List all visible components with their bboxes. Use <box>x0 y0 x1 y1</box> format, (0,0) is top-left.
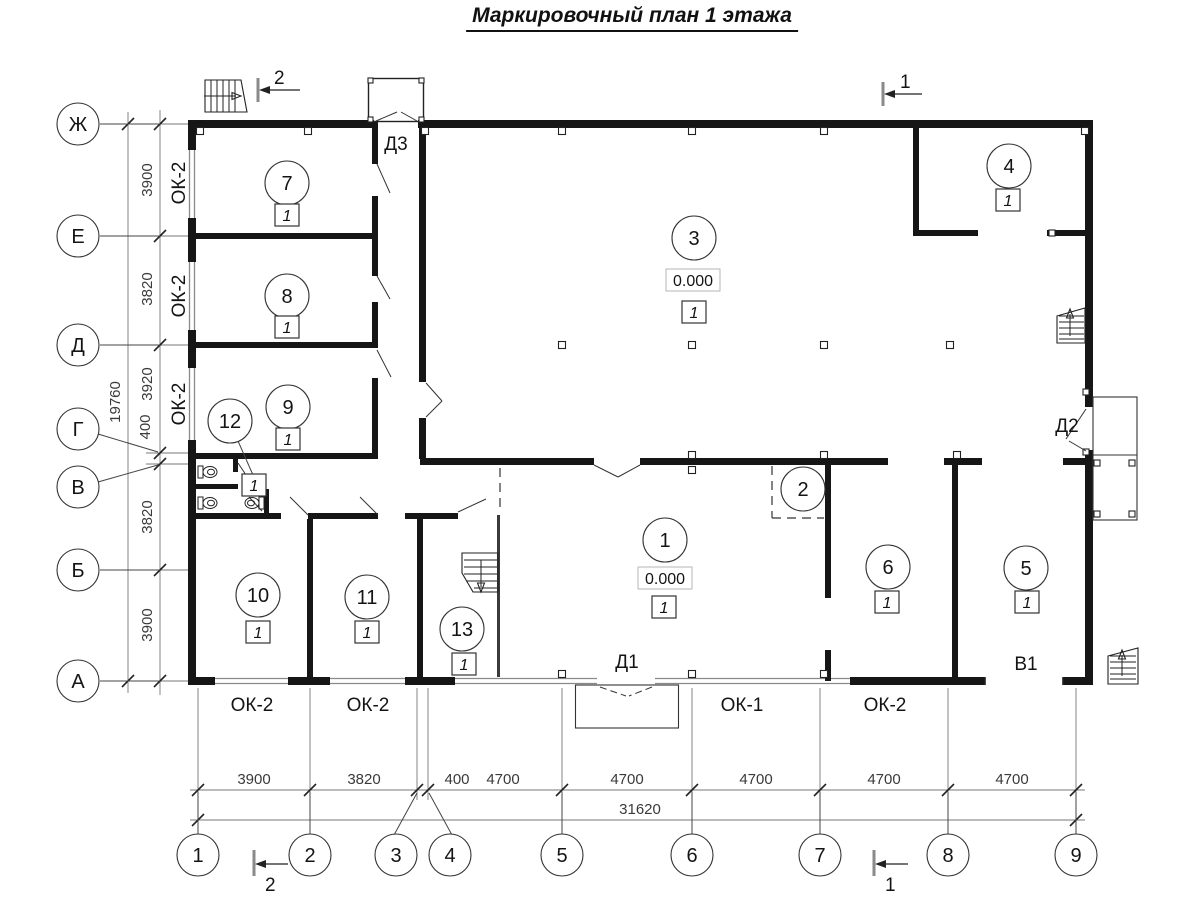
section-1-top-label: 1 <box>900 72 911 93</box>
axis-col-7: 7 <box>814 845 825 867</box>
axis-col-2: 2 <box>304 845 315 867</box>
room-marker-3: 3 0.000 1 <box>666 216 720 323</box>
dim-bottom-6: 4700 <box>739 771 772 788</box>
window-ok2-bottom-1-label: ОК-2 <box>231 695 274 716</box>
section-mark-2-bottom: 2 <box>254 850 288 896</box>
axis-col-9: 9 <box>1070 845 1081 867</box>
dim-left-3: 3920 <box>139 367 156 400</box>
gate-v1-label: В1 <box>1014 654 1037 675</box>
room-marker-9: 9 1 <box>266 385 310 450</box>
stairs-right-icon <box>1057 308 1085 343</box>
axis-col-4: 4 <box>444 845 455 867</box>
dim-bottom-5: 4700 <box>610 771 643 788</box>
room-marker-5: 5 1 <box>1004 546 1048 613</box>
dim-bottom-1: 3900 <box>237 771 270 788</box>
interior-walls <box>196 122 1085 681</box>
room-3-elevation: 0.000 <box>673 273 713 290</box>
door-d3-label: Д3 <box>384 134 407 155</box>
entrance-vestibule-top <box>368 78 424 122</box>
dim-bottom-8: 4700 <box>995 771 1028 788</box>
axis-row-e: Е <box>71 226 84 248</box>
stairs-room13-icon <box>462 553 498 592</box>
porch-bottom <box>576 685 679 728</box>
room-7-number: 7 <box>281 173 292 195</box>
room-3-floor-type: 1 <box>690 305 699 322</box>
room-12-number: 12 <box>219 411 241 433</box>
window-ok2-left-2-label: ОК-2 <box>169 275 190 318</box>
room-marker-4: 4 1 <box>987 144 1031 211</box>
opening-labels: Д3 Д1 Д2 В1 ОК-2 ОК-2 ОК-2 ОК-2 ОК-2 ОК-… <box>169 134 1079 716</box>
axis-col-1: 1 <box>192 845 203 867</box>
room-10-floor-type: 1 <box>254 625 263 642</box>
room-1-elevation: 0.000 <box>645 571 685 588</box>
room-11-number: 11 <box>357 587 378 609</box>
room-2-number: 2 <box>797 479 808 501</box>
window-ok2-bottom-2-label: ОК-2 <box>347 695 390 716</box>
stairs-top-left-icon <box>199 80 248 112</box>
room-5-number: 5 <box>1020 558 1031 580</box>
room-marker-8: 8 1 <box>265 274 309 338</box>
room-marker-12: 12 1 <box>208 399 266 496</box>
axis-row-a: А <box>71 671 85 693</box>
room-13-number: 13 <box>451 619 473 641</box>
axis-col-6: 6 <box>686 845 697 867</box>
floor-plan-canvas: Маркировочный план 1 этажа <box>0 0 1200 900</box>
room-10-number: 10 <box>247 585 269 607</box>
room-11-floor-type: 1 <box>363 625 372 642</box>
porch-right <box>1093 397 1137 520</box>
room-marker-13: 13 1 <box>440 607 484 675</box>
room-5-floor-type: 1 <box>1023 595 1032 612</box>
room-marker-10: 10 1 <box>236 573 280 643</box>
axis-row-zh: Ж <box>69 114 88 136</box>
section-mark-1-bottom: 1 <box>874 850 908 896</box>
dim-bottom-4: 4700 <box>486 771 519 788</box>
room-marker-6: 6 1 <box>866 545 910 613</box>
room-6-floor-type: 1 <box>883 595 892 612</box>
dim-bottom-7: 4700 <box>867 771 900 788</box>
floor-plan-drawing: 3900 3820 3920 400 3820 3900 19760 3900 … <box>0 0 1200 900</box>
axis-row-d: Д <box>71 335 85 357</box>
room-9-floor-type: 1 <box>284 432 293 449</box>
section-2-bottom-label: 2 <box>265 875 276 896</box>
dim-left-4: 400 <box>137 414 154 439</box>
axis-col-8: 8 <box>942 845 953 867</box>
room-13-floor-type: 1 <box>460 657 469 674</box>
dim-left-2: 3820 <box>139 272 156 305</box>
axis-col-5: 5 <box>556 845 567 867</box>
room-6-number: 6 <box>882 557 893 579</box>
room-4-floor-type: 1 <box>1004 193 1013 210</box>
window-ok1-bottom-label: ОК-1 <box>721 695 764 716</box>
room-3-number: 3 <box>688 228 699 250</box>
dim-left-1: 3900 <box>139 163 156 196</box>
room-8-number: 8 <box>281 286 292 308</box>
room-12-floor-type: 1 <box>250 478 259 495</box>
section-2-top-label: 2 <box>274 68 285 89</box>
dim-bottom-3: 400 <box>444 771 469 788</box>
dimension-lines <box>120 110 1085 833</box>
dim-bottom-2: 3820 <box>347 771 380 788</box>
door-d1-label: Д1 <box>615 652 638 673</box>
section-mark-2-top: 2 <box>258 68 300 102</box>
room-marker-11: 11 1 <box>345 575 389 643</box>
dim-left-6: 3900 <box>139 608 156 641</box>
room-marker-1: 1 0.000 1 <box>638 518 692 618</box>
window-ok2-left-3-label: ОК-2 <box>169 383 190 426</box>
section-mark-1-top: 1 <box>883 72 922 106</box>
door-d2-label: Д2 <box>1055 416 1078 437</box>
dim-left-5: 3820 <box>139 500 156 533</box>
room-4-number: 4 <box>1003 156 1014 178</box>
dim-bottom-total: 31620 <box>619 801 661 818</box>
toilet-icon-2 <box>198 497 217 509</box>
toilet-icon-1 <box>198 466 217 478</box>
stairs-bottom-right-icon <box>1108 648 1138 684</box>
window-ok2-left-1-label: ОК-2 <box>169 162 190 205</box>
axis-col-3: 3 <box>390 845 401 867</box>
room-9-number: 9 <box>282 397 293 419</box>
room-7-floor-type: 1 <box>283 208 292 225</box>
room-1-floor-type: 1 <box>660 600 669 617</box>
room-1-number: 1 <box>659 530 670 552</box>
room-marker-2: 2 <box>781 467 825 511</box>
axis-row-g: Г <box>73 419 84 441</box>
toilet-icon-3 <box>245 497 264 509</box>
axis-row-b: Б <box>71 560 84 582</box>
section-1-bottom-label: 1 <box>885 875 896 896</box>
room-8-floor-type: 1 <box>283 320 292 337</box>
dim-left-total: 19760 <box>107 381 124 423</box>
room-marker-7: 7 1 <box>265 161 309 226</box>
axis-row-v: В <box>71 477 84 499</box>
window-ok2-bottom-3-label: ОК-2 <box>864 695 907 716</box>
